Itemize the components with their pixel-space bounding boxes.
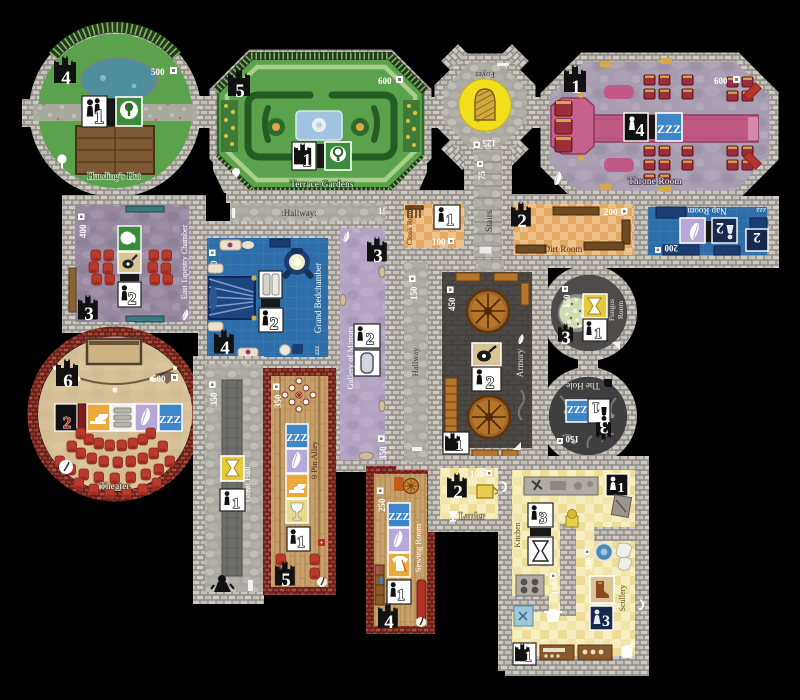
svg-text:2: 2	[128, 289, 137, 308]
svg-text:1: 1	[594, 326, 602, 342]
svg-text:2: 2	[716, 219, 724, 236]
svg-text:4: 4	[61, 68, 71, 89]
svg-text:9 Pin Alley: 9 Pin Alley	[309, 440, 319, 479]
svg-text:2: 2	[517, 211, 527, 232]
svg-text:3: 3	[373, 246, 383, 267]
svg-text:4: 4	[384, 612, 394, 633]
svg-text:Sewing Room: Sewing Room	[413, 523, 423, 572]
svg-text:1: 1	[297, 534, 305, 551]
svg-text:Kitchen: Kitchen	[513, 522, 522, 547]
svg-text:ZZZ: ZZZ	[159, 414, 181, 426]
svg-text:500: 500	[151, 67, 165, 77]
svg-text:400: 400	[78, 224, 88, 238]
svg-text:1: 1	[94, 106, 104, 128]
svg-text:1: 1	[455, 438, 463, 454]
svg-text:ZZZ: ZZZ	[657, 122, 681, 136]
svg-text:5: 5	[235, 81, 245, 102]
svg-text:Stairs: Stairs	[485, 210, 495, 232]
svg-text:2: 2	[366, 331, 374, 348]
svg-text:Armory: Armory	[515, 348, 525, 377]
svg-text:Larder: Larder	[459, 511, 485, 521]
svg-text:Nap Room: Nap Room	[687, 206, 726, 216]
svg-text:1: 1	[592, 399, 600, 415]
svg-text:6: 6	[63, 371, 73, 392]
svg-text:1: 1	[524, 649, 532, 665]
svg-text:5: 5	[281, 570, 291, 591]
svg-text:600: 600	[378, 76, 392, 86]
svg-text:2: 2	[453, 482, 463, 503]
svg-text:4: 4	[636, 120, 645, 140]
svg-text:Throne Room: Throne Room	[628, 176, 682, 186]
svg-text:100: 100	[470, 469, 484, 479]
svg-text:Terrace Gardens: Terrace Gardens	[290, 179, 354, 189]
svg-text:2: 2	[753, 229, 761, 245]
svg-text:1: 1	[397, 587, 405, 604]
svg-text:Fungus: Fungus	[607, 299, 616, 321]
svg-text:Hunding’s Hut: Hunding’s Hut	[87, 171, 141, 181]
svg-text:Hallway: Hallway	[410, 347, 420, 377]
svg-text::Hallway:: :Hallway:	[281, 208, 317, 218]
svg-text:3: 3	[539, 510, 547, 527]
svg-text:1: 1	[446, 212, 454, 229]
svg-text:2: 2	[63, 413, 72, 432]
svg-text:3: 3	[84, 304, 94, 325]
svg-text:Scullery: Scullery	[618, 585, 627, 612]
svg-text:100: 100	[550, 581, 560, 595]
svg-text:2: 2	[486, 373, 495, 392]
svg-text:350: 350	[378, 446, 388, 460]
svg-text:ZZZ: ZZZ	[388, 512, 409, 523]
svg-text:350: 350	[209, 392, 219, 406]
svg-text:Cloak Room: Cloak Room	[405, 207, 414, 245]
svg-text:300: 300	[584, 557, 594, 571]
svg-text:1: 1	[618, 481, 625, 496]
svg-text:1: 1	[571, 77, 581, 98]
svg-text:3: 3	[561, 328, 571, 349]
svg-text:150: 150	[409, 286, 419, 300]
svg-text:3: 3	[599, 416, 609, 437]
svg-text:125: 125	[482, 138, 496, 148]
svg-text:200: 200	[604, 207, 618, 217]
svg-text:600: 600	[714, 76, 728, 86]
svg-text:zzz: zzz	[755, 206, 766, 215]
svg-text:Grand Bedchamber: Grand Bedchamber	[313, 263, 323, 333]
svg-text:Gallery of Mirrors: Gallery of Mirrors	[345, 327, 355, 390]
svg-text:1: 1	[303, 150, 312, 170]
svg-text:zzz: zzz	[313, 346, 321, 355]
svg-text:Room: Room	[616, 301, 625, 320]
svg-text:150: 150	[562, 294, 572, 308]
svg-text:250: 250	[377, 498, 387, 512]
svg-text:1: 1	[232, 496, 240, 512]
svg-text:3: 3	[602, 613, 610, 630]
svg-text:Dirt Room: Dirt Room	[544, 244, 583, 254]
svg-text:2: 2	[270, 314, 279, 333]
svg-text:450: 450	[447, 297, 457, 311]
svg-text:4: 4	[220, 338, 230, 359]
svg-text:ZZZ: ZZZ	[286, 433, 307, 444]
svg-text:350: 350	[273, 394, 283, 408]
svg-text:100: 100	[432, 237, 446, 247]
svg-text:The Hole: The Hole	[566, 381, 600, 391]
svg-text:Theater: Theater	[100, 481, 130, 491]
svg-text:150: 150	[565, 434, 579, 444]
svg-text:500: 500	[152, 374, 166, 384]
svg-text:75: 75	[477, 171, 487, 181]
svg-text:Foyer: Foyer	[475, 70, 495, 80]
svg-text:200: 200	[664, 243, 678, 253]
svg-text:East Tapestry Chamber: East Tapestry Chamber	[180, 224, 189, 299]
svg-text:ZZZ: ZZZ	[567, 403, 587, 414]
